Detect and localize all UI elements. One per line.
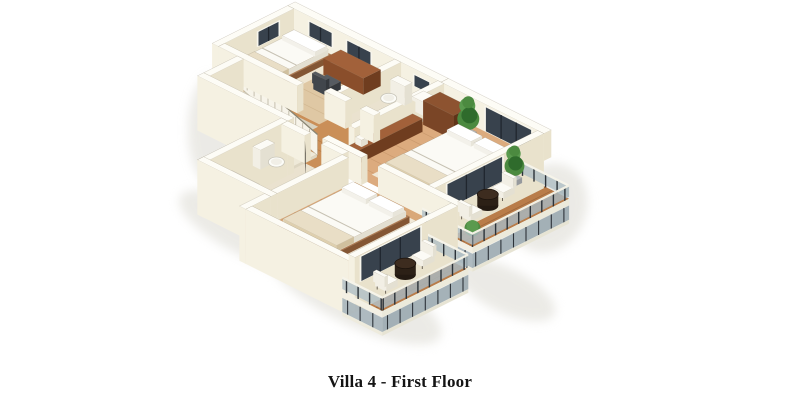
caption: Villa 4 - First Floor <box>0 372 800 392</box>
floor-plan-render <box>0 0 800 400</box>
floor-plan-figure: Villa 4 - First Floor <box>0 0 800 400</box>
